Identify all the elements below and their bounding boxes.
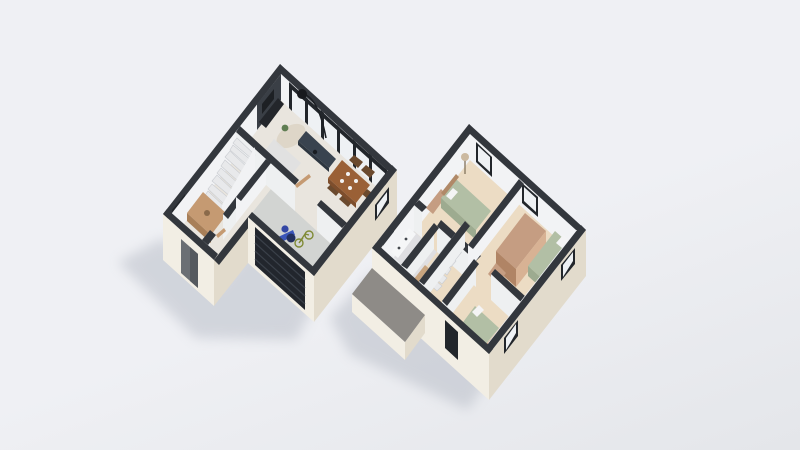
plate	[354, 179, 358, 183]
plate	[340, 179, 344, 183]
plate	[346, 172, 350, 176]
helmet	[281, 225, 288, 232]
floor-plan-canvas	[0, 0, 800, 450]
island-sink	[313, 150, 317, 154]
desk-chair	[204, 210, 210, 216]
floor-plan-render	[0, 0, 800, 450]
tap	[398, 247, 401, 250]
plant-pot	[282, 125, 289, 132]
tap	[405, 238, 408, 241]
plate	[348, 186, 352, 190]
